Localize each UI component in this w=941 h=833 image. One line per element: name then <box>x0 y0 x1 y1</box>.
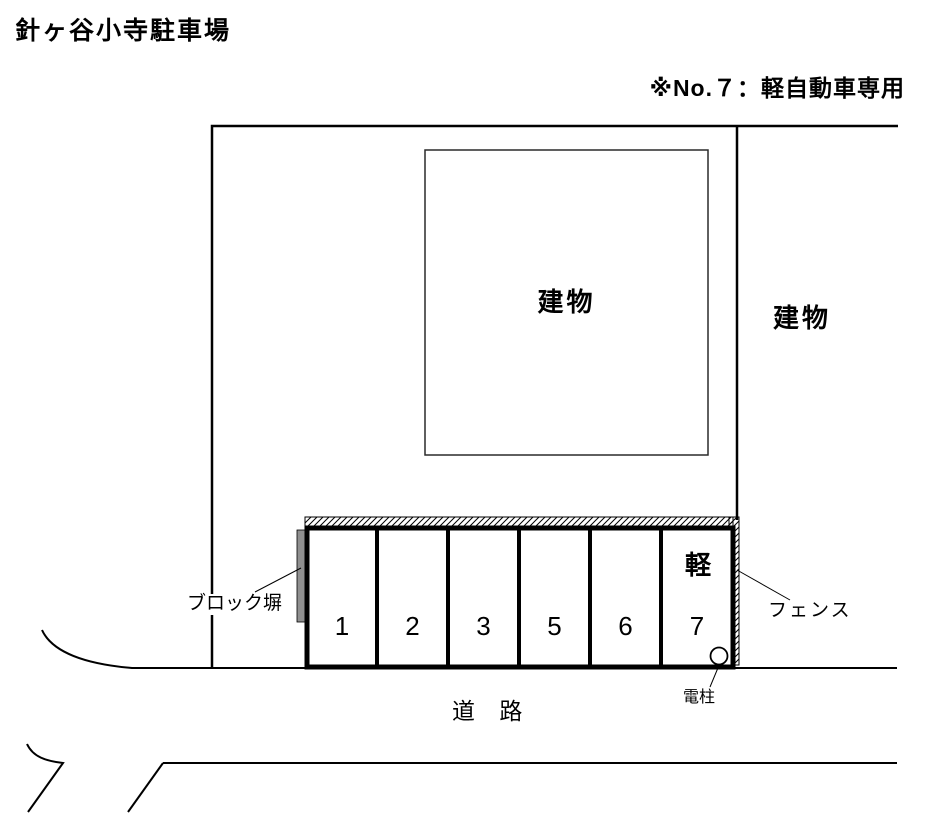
side-street-left-edge <box>27 744 63 812</box>
utility-pole-label: 電柱 <box>683 689 715 707</box>
fence-label: フェンス <box>768 601 852 622</box>
page-title: 針ヶ谷小寺駐車場 <box>15 18 231 46</box>
block-wall-leader-line <box>255 568 301 592</box>
kei-vehicle-tag: 軽 <box>663 551 733 580</box>
side-street-right-edge <box>128 763 163 812</box>
building-label: 建物 <box>425 288 708 317</box>
stall-number-7: 7 <box>661 611 733 643</box>
road-label: 道 路 <box>452 699 524 724</box>
stall-number-6: 6 <box>590 611 661 643</box>
stall-number-5: 5 <box>519 611 590 643</box>
stall-number-3: 3 <box>448 611 519 643</box>
stall-number-2: 2 <box>377 611 448 643</box>
top-hatched-wall <box>305 517 733 526</box>
utility-pole-circle <box>711 648 728 665</box>
building-label-right: 建物 <box>762 304 842 333</box>
fence-leader-line <box>737 570 790 600</box>
parking-layout-diagram: 針ヶ谷小寺駐車場 ※No.７：軽自動車専用 建物 建物 1 2 3 5 6 7 … <box>0 0 941 833</box>
block-wall-label: ブロック塀 <box>185 594 284 615</box>
note-no7-kei-only: ※No.７：軽自動車専用 <box>650 76 905 101</box>
stall-number-1: 1 <box>307 611 377 643</box>
